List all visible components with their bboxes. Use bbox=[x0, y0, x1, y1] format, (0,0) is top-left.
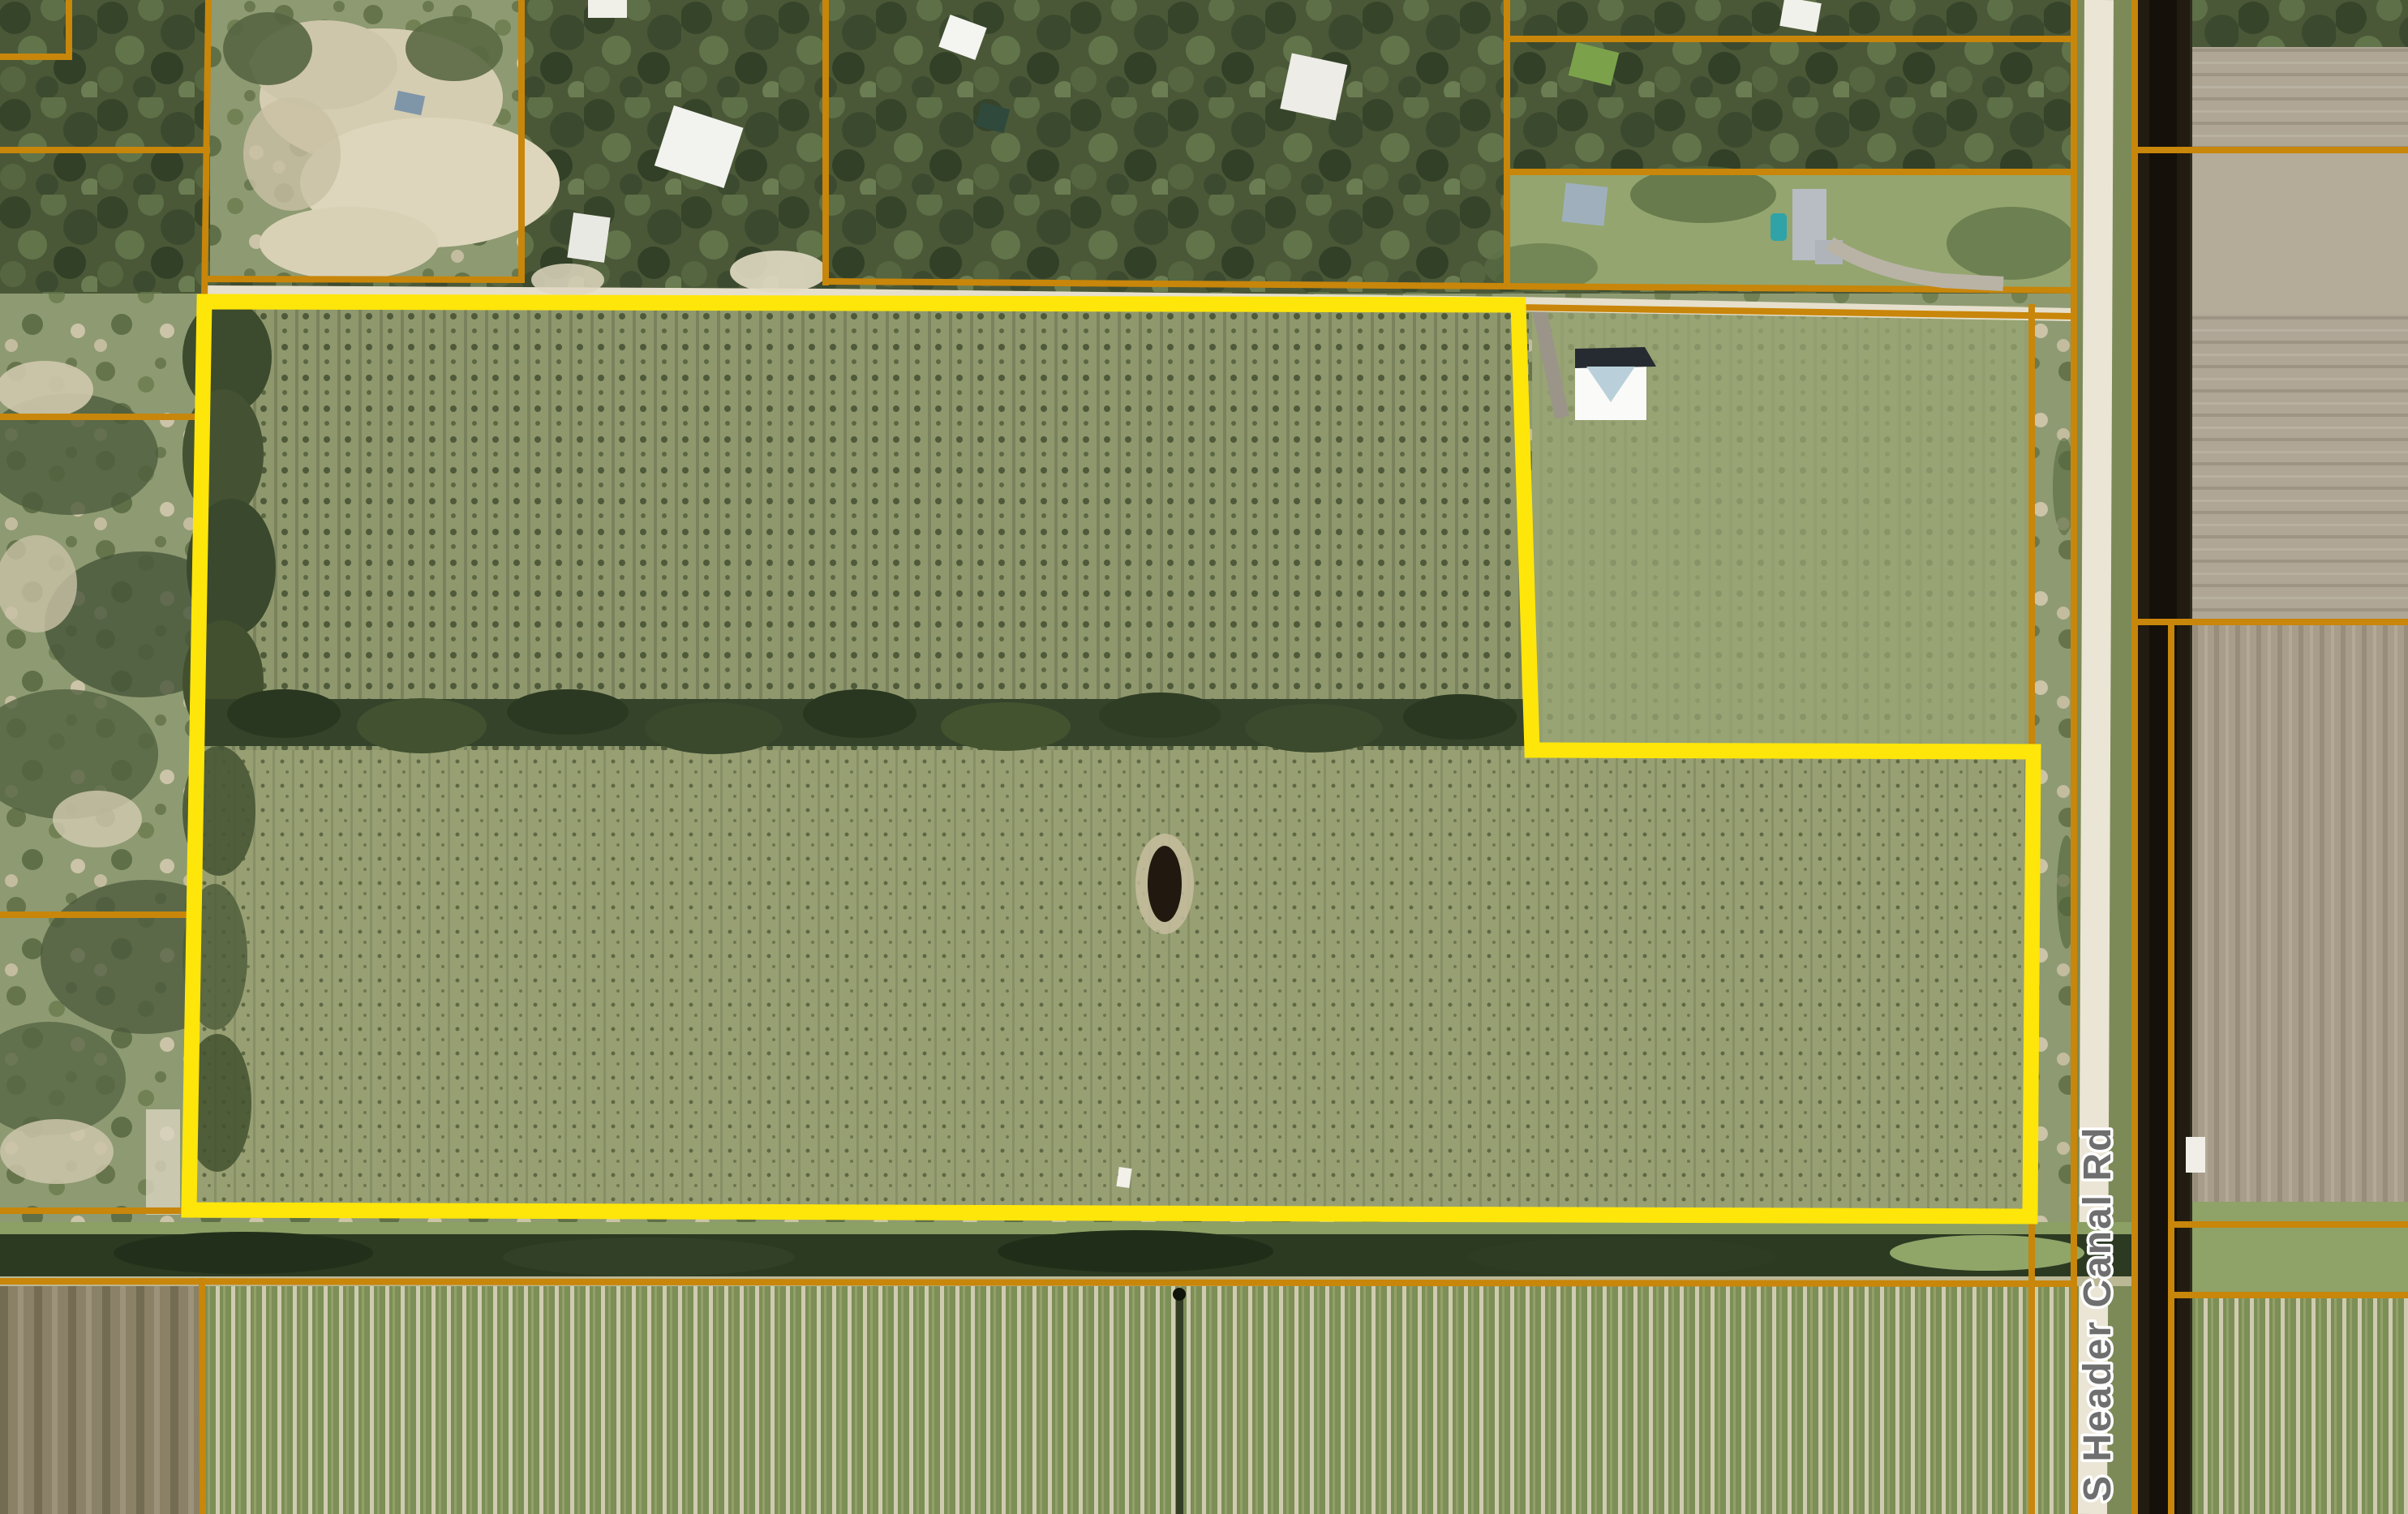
road-label-group: S Header Canal Rd bbox=[2076, 1126, 2119, 1502]
road-label: S Header Canal Rd bbox=[2076, 1126, 2119, 1502]
dirt-track bbox=[146, 1109, 180, 1215]
pond bbox=[1135, 834, 1194, 934]
right-fields bbox=[2186, 0, 2408, 1514]
culvert-pipe bbox=[2186, 1137, 2205, 1173]
building-top-edge bbox=[588, 0, 627, 18]
bottom-fields bbox=[0, 1222, 2137, 1514]
sandy-parcel-ground bbox=[210, 0, 560, 280]
barn-building bbox=[1575, 347, 1656, 420]
shed-white bbox=[567, 212, 610, 263]
field-ditch bbox=[1176, 1291, 1183, 1514]
barn-white bbox=[1280, 53, 1347, 120]
swimming-pool bbox=[1771, 213, 1787, 241]
vehicle-dot bbox=[1116, 1167, 1131, 1188]
house-gray-blue-roof bbox=[1562, 182, 1608, 225]
map-canvas[interactable]: S Header Canal Rd bbox=[0, 0, 2408, 1514]
aerial-map-view[interactable]: S Header Canal Rd bbox=[0, 0, 2408, 1514]
